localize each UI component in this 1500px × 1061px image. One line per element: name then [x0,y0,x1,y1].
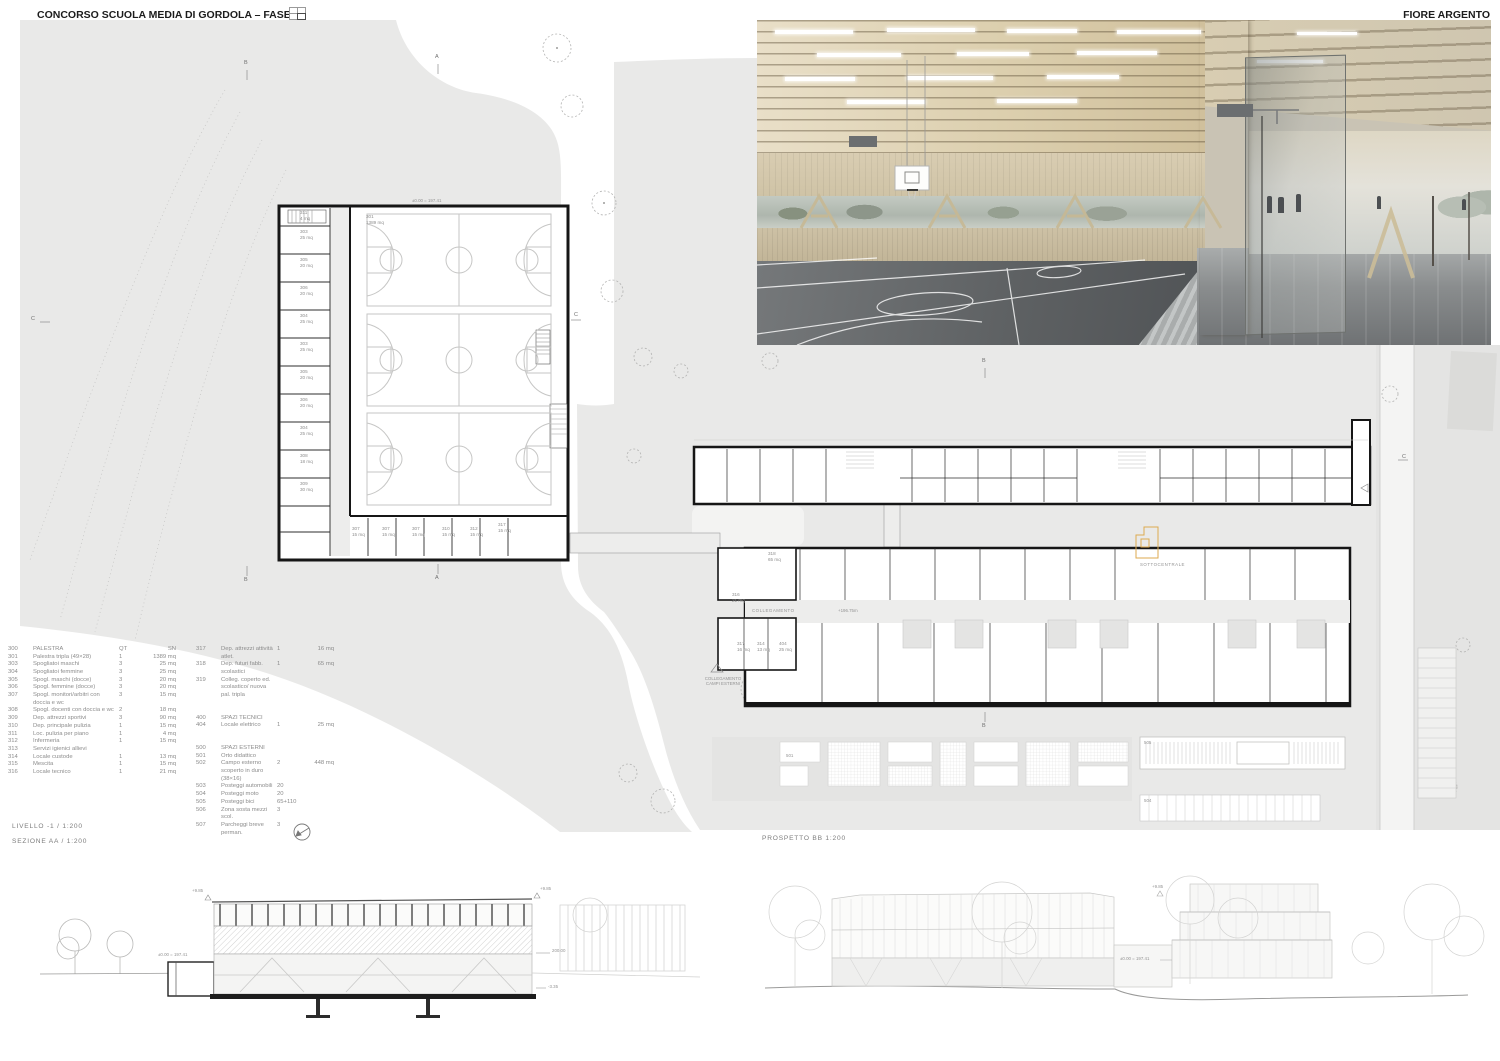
legend-row: 400 SPAZI TECNICI [196,715,334,723]
legend-row: 311 Loc. pulizia per piano 1 4 mq [8,731,176,739]
room-label: 316 21 mq [732,592,754,603]
room-label: 404 25 mq [779,641,801,652]
legend-row: 301 Palestra tripla (49×28) 1 1389 mq [8,654,176,662]
legend-row [196,730,334,745]
room-label: 306 20 mq [300,285,330,296]
sezione-level-bottom: -3.35 [548,984,558,989]
legend-row: 312 Infermeria 1 15 mq [8,738,176,746]
garden-plot-label: 501 [786,753,793,758]
sezione-level-zero: ±0.00 = 197.41 [158,952,187,957]
legend-row: 315 Mescita 1 15 mq [8,761,176,769]
room-label: 312 15 mq [470,526,500,537]
room-label: 314 13 mq [757,641,779,652]
room-label: 304 25 mq [300,425,330,436]
marker-a-bottom: A [435,575,439,581]
phase-grid-icon [289,7,306,20]
room-label: 305 20 mq [300,257,330,268]
collegamento-label: COLLEGAMENTO [752,608,795,613]
room-label: 317 15 mq [498,522,528,533]
hall-quota-label: ±0.00 = 197.41 [412,198,441,203]
legend-column-1: 300 PALESTRA QT SN 301 Palestra tripla (… [8,646,176,777]
collegamento-quota-label: +196.75m [838,608,858,613]
marker-b-school-top: B [982,358,986,364]
room-label: 305 20 mq [300,369,330,380]
hall-number-label: 3011389 mq [366,214,406,225]
legend-row: 507 Parcheggi breve perman. 3 [196,822,334,837]
sezione-aa-drawing [40,893,700,1018]
legend-row: 500 SPAZI ESTERNI [196,745,334,753]
marker-b-bottom: B [244,577,248,583]
view-label-livello: LIVELLO -1 / 1:200 [12,823,83,830]
legend-row: 501 Orto didattico [196,753,334,761]
legend-row: 303 Spogliatoi maschi 3 25 mq [8,661,176,669]
room-label: 307 15 mq [352,526,382,537]
gym-interior-render [757,20,1491,345]
marker-c-left: C [31,316,35,322]
prospetto-level-zero: ±0.00 = 197.41 [1120,956,1149,961]
legend-row: 318 Dep. futuri fabb. scolastici 1 65 mq [196,661,334,676]
marker-b-school-bottom: B [982,723,986,729]
room-label: 308 18 mq [300,453,330,464]
legend-row [196,700,334,715]
prospetto-bb-drawing [765,876,1484,1000]
room-label: 309 30 mq [300,481,330,492]
legend-row: 300 PALESTRA QT SN [8,646,176,654]
legend-row: 505 Posteggi bici 65+110 [196,799,334,807]
sezione-level-top: +9.85 [192,888,203,893]
legend-row: 307 Spogl. monitori/arbitri con doccia e… [8,692,176,707]
view-label-sezione: SEZIONE AA / 1:200 [12,838,87,845]
bike-parking-label: 505 [1144,740,1151,745]
legend-row: 305 Spogl. maschi (docce) 3 20 mq [8,677,176,685]
legend-row: 316 Locale tecnico 1 21 mq [8,769,176,777]
legend-row: 502 Campo esterno scoperto in duro (38×1… [196,760,334,783]
marker-b-top: B [244,60,248,66]
legend-row: 317 Dep. attrezzi attività atlet. 1 16 m… [196,646,334,661]
legend-row: 308 Spogl. docenti con doccia e wc 2 18 … [8,707,176,715]
marker-c-school: C [1402,454,1406,460]
legend-column-2: 317 Dep. attrezzi attività atlet. 1 16 m… [196,646,334,837]
room-label: 307 15 mq [412,526,442,537]
legend-row: 319 Colleg. coperto ed. scolastico/ nuov… [196,677,334,700]
marker-c-mid: C [574,312,578,318]
legend-row: 306 Spogl. femmine (docce) 3 20 mq [8,684,176,692]
legend-row: 313 Servizi igienici allievi [8,746,176,754]
room-label: 317 16 mq [737,641,759,652]
sottocentrale-label: SOTTOCENTRALE [1140,562,1185,567]
sezione-level-right: 200.00 [552,948,565,953]
legend-row: 506 Zona sosta mezzi scol. 3 [196,807,334,822]
room-label: 304 25 mq [300,313,330,324]
prospetto-level-top: +9.85 [1152,884,1163,889]
legend-row: 503 Posteggi automobili 20 [196,783,334,791]
room-label: 310 15 mq [442,526,472,537]
legend-row: 310 Dep. principale pulizia 1 15 mq [8,723,176,731]
legend-row: 504 Posteggi moto 20 [196,791,334,799]
sezione-level-top-right: +9.85 [540,886,551,891]
author-name: FIORE ARGENTO [1403,9,1490,21]
room-label: 306 20 mq [300,397,330,408]
room-label: 307 15 mq [382,526,412,537]
render-detail-lines [757,20,1491,345]
board-title: CONCORSO SCUOLA MEDIA DI GORDOLA – FASE … [37,9,300,21]
legend-row: 404 Locale elettrico 1 25 mq [196,722,334,730]
campi-esterni-label: COLLEGAMENTO CAMPI ESTERNI [700,676,746,686]
competition-board: { "header":{"title":"CONCORSO SCUOLA MED… [0,0,1500,1061]
room-label: 311 4 mq [300,210,330,221]
view-label-prospetto: PROSPETTO BB 1:200 [762,835,846,842]
marker-a-top: A [435,54,439,60]
room-label: 303 25 mq [300,341,330,352]
legend-row: 309 Dep. attrezzi sportivi 3 90 mq [8,715,176,723]
room-label: 318 65 mq [768,551,790,562]
room-label: 303 25 mq [300,229,330,240]
legend-row: 314 Locale custode 1 13 mq [8,754,176,762]
legend-row: 304 Spogliatoi femmine 3 25 mq [8,669,176,677]
moto-parking-label: 504 [1144,798,1151,803]
